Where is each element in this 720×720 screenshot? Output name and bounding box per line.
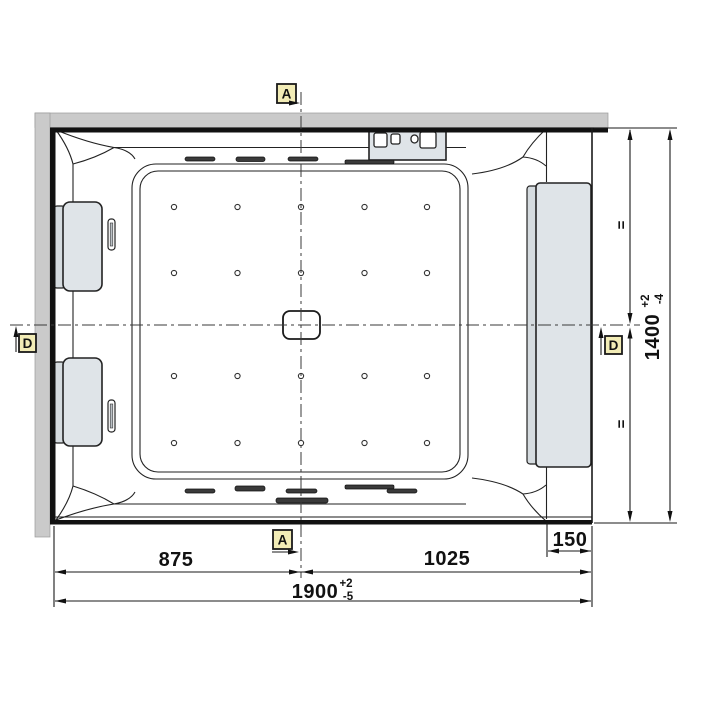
control-panel (369, 129, 446, 160)
equal-mark-lower: = (612, 420, 629, 429)
section-d-right-label: D (609, 338, 619, 353)
bottom-slot-4 (387, 489, 417, 493)
section-marker-a-top: A (276, 84, 300, 106)
dim-left-value: 875 (159, 549, 194, 571)
bottom-slot-2 (235, 486, 265, 491)
wall-top (35, 113, 608, 128)
technical-drawing-page: = = 1400 +2 -4 875 1025 (0, 0, 720, 720)
grab-slot-lower (108, 400, 115, 432)
headrest-upper (53, 202, 102, 291)
dim-overall-width: 1900 +2 -5 (55, 578, 591, 604)
bottom-slot-wide (345, 485, 394, 489)
dim-panel-value: 150 (553, 529, 588, 551)
section-d-left-label: D (23, 336, 33, 351)
section-a-bottom-label: A (278, 533, 288, 548)
dim-width-value: 1900 (292, 581, 339, 603)
control-button-2 (391, 134, 400, 144)
control-button-3 (411, 135, 418, 143)
dim-center-split: 875 1025 (55, 548, 591, 575)
section-a-top-label: A (282, 87, 292, 102)
dim-width-tol-plus: +2 (339, 578, 352, 590)
grab-slot-upper (108, 219, 115, 250)
dim-side-panel: 150 (548, 529, 591, 554)
control-button-4 (420, 132, 436, 148)
dim-depth-tol-plus: +2 (640, 294, 652, 307)
section-marker-a-bottom: A (272, 530, 299, 555)
control-button-1 (374, 133, 387, 147)
headrest-lower (53, 358, 102, 446)
headrest-upper-pad (63, 202, 102, 291)
dim-overall-depth: 1400 +2 -4 (640, 129, 673, 522)
section-marker-d-left: D (14, 326, 37, 352)
bottom-slot-center-wide (276, 498, 328, 503)
dim-right-value: 1025 (424, 548, 471, 570)
top-slot-3 (288, 157, 318, 161)
top-slot-2 (236, 157, 265, 162)
dim-depth-tol-minus: -4 (654, 293, 666, 304)
dim-width-tol-minus: -5 (343, 591, 354, 603)
tub-edge-bottom (50, 520, 592, 525)
headrest-lower-pad (63, 358, 102, 446)
tub-edge-top (50, 128, 608, 133)
dim-depth-value: 1400 (642, 314, 664, 361)
bottom-slot-3 (286, 489, 317, 493)
equal-mark-upper: = (612, 221, 629, 230)
bathtub-plan-drawing: = = 1400 +2 -4 875 1025 (0, 0, 720, 720)
top-slot-1 (185, 157, 215, 161)
bottom-slot-1 (185, 489, 215, 493)
section-marker-d-right: D (599, 327, 623, 355)
